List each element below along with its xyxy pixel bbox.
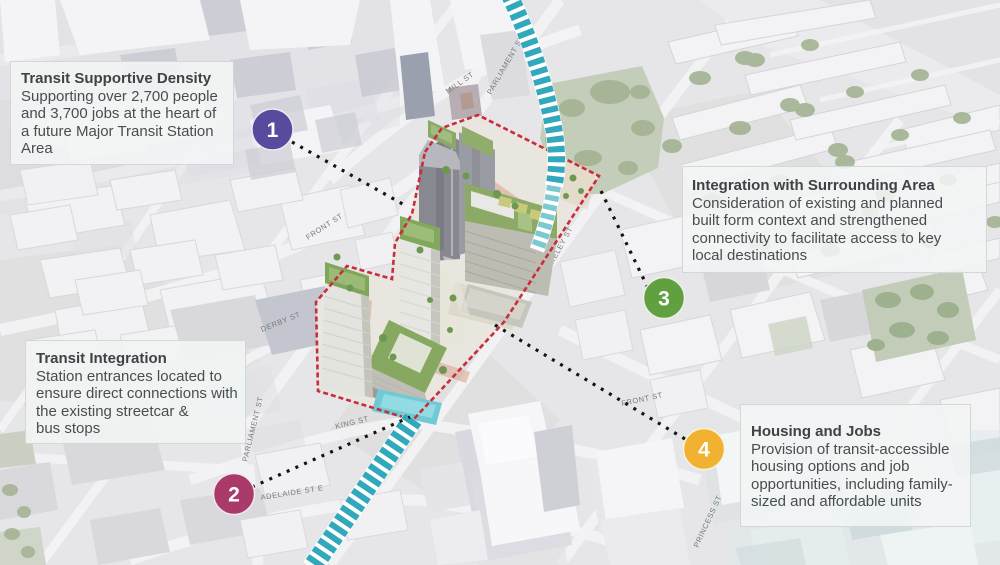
svg-text:4: 4 [698,439,710,462]
svg-text:1: 1 [267,119,279,142]
svg-text:2: 2 [228,484,240,507]
svg-text:3: 3 [658,288,670,311]
